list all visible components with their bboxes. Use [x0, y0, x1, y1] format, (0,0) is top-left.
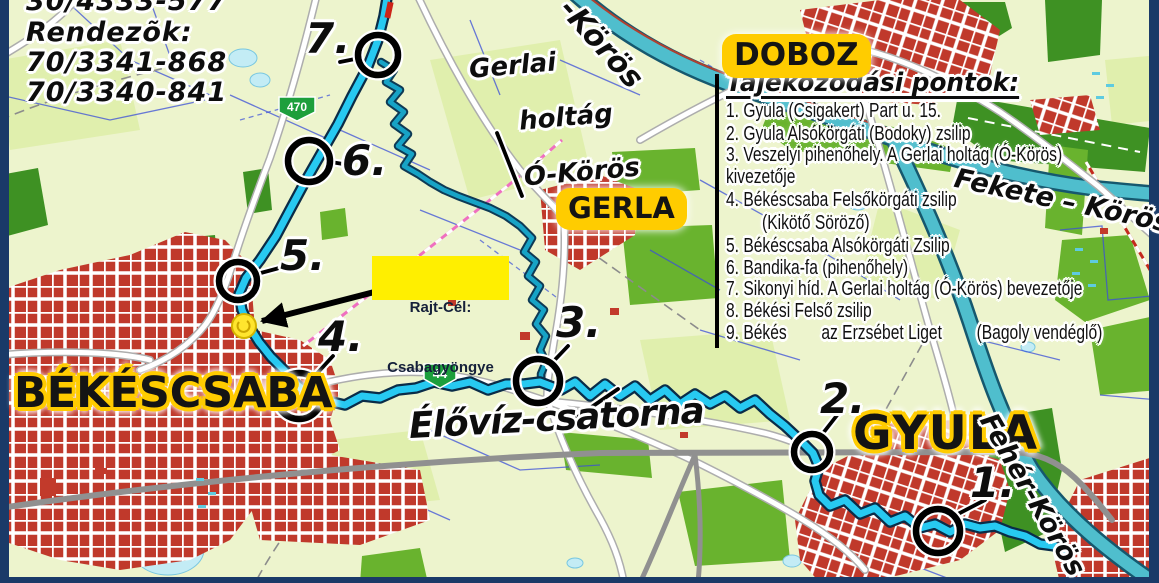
checkpoint-5-label: 5. — [280, 231, 325, 280]
checkpoint-2-label: 2. — [820, 374, 865, 423]
checkpoint-6-label: 6. — [342, 136, 387, 185]
start-finish-box: Rajt-Cél: Csabagyöngye — [372, 256, 509, 300]
shield-470-number: 470 — [287, 100, 307, 114]
legend-item-5: 5. Békéscsaba Alsókörgáti Zsilip — [726, 235, 950, 258]
legend-item-2: 2. Gyula Alsókörgáti (Bodoky) zsilip — [726, 123, 971, 146]
legend-item-4b: (Kikötő Söröző) — [762, 212, 870, 235]
legend-item-9: 9. Békés az Erzsébet Liget (Bagoly vendé… — [726, 322, 1102, 345]
checkpoint-3-label: 3. — [556, 298, 601, 347]
hamlet-fekete — [1030, 95, 1100, 135]
legend-left-rule — [715, 74, 719, 348]
contact-line-3: 70/3341-868 — [26, 47, 227, 78]
legend-item-1: 1. Gyula (Csigakert) Part u. 15. — [726, 100, 941, 123]
gerlai-line-1: Gerlai — [468, 47, 557, 84]
legend-item-3b: kivezetője — [726, 166, 795, 189]
legend-item-8: 8. Békési Felső zsilip — [726, 300, 872, 323]
town-label-bekescsaba: BÉKÉSCSABA — [14, 368, 332, 418]
town-label-doboz: DOBOZ — [724, 36, 869, 76]
route-map: 470 44 — [0, 0, 1159, 583]
legend-item-7: 7. Sikonyi híd. A Gerlai holtág (Ó-Körös… — [726, 278, 1082, 301]
town-label-gerla: GERLA — [558, 190, 685, 228]
legend-item-3: 3. Veszelyi pihenőhely. A Gerlai holtág … — [726, 144, 1062, 167]
start-box-line-2: Csabagyöngye — [372, 358, 509, 378]
checkpoint-7-label: 7. — [305, 14, 350, 63]
gerlai-line-2: holtág — [518, 99, 614, 137]
contact-line-2: Rendezõk: — [26, 17, 193, 48]
checkpoint-1-label: 1. — [970, 458, 1015, 507]
legend-item-6: 6. Bandika-fa (pihenőhely) — [726, 257, 908, 280]
start-box-line-1: Rajt-Cél: — [372, 298, 509, 318]
checkpoint-4-label: 4. — [318, 312, 363, 361]
contact-line-4: 70/3340-841 — [26, 77, 227, 108]
contact-line-1: 30/4333-577 — [26, 0, 227, 17]
legend-item-4: 4. Békéscsaba Felsőkörgáti zsilip — [726, 189, 957, 212]
